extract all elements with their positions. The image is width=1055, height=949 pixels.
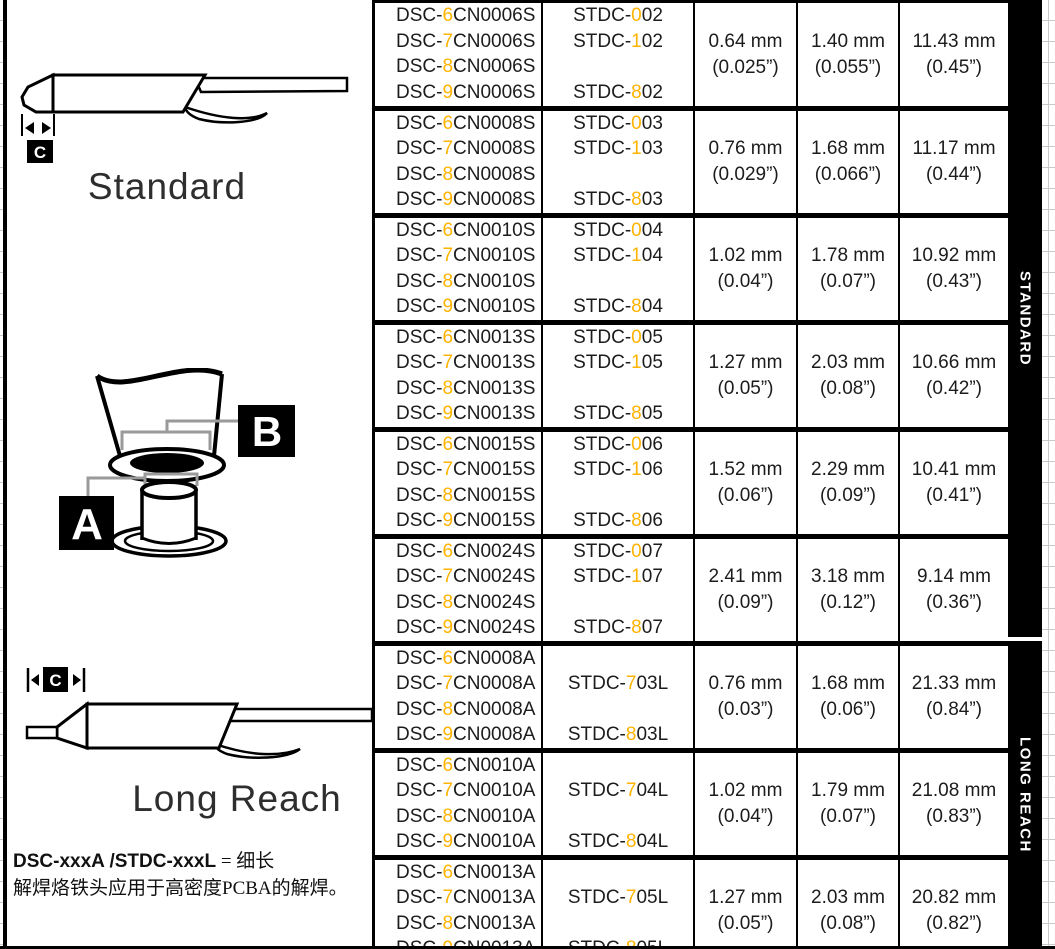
stdc-part-number: STDC-006 bbox=[573, 432, 663, 457]
part-number-highlight-digit: 8 bbox=[626, 938, 637, 949]
dimension-mm: 2.41 mm bbox=[695, 564, 796, 590]
c-dimension-marker: C bbox=[22, 114, 54, 163]
part-number-highlight-digit: 0 bbox=[631, 220, 642, 242]
table-row: DSC-6CN0010ADSC-7CN0010ADSC-8CN0010ADSC-… bbox=[375, 748, 1008, 855]
stdc-part-cell: STDC-006STDC-106STDC-806 bbox=[541, 432, 693, 534]
dsc-part-number: DSC-8CN0015S bbox=[396, 483, 541, 508]
dsc-part-number: DSC-9CN0008S bbox=[396, 187, 541, 212]
dimension-mm: 0.76 mm bbox=[695, 671, 796, 697]
dimension-inch: (0.07”) bbox=[798, 804, 898, 830]
dimension-mm: 1.79 mm bbox=[798, 778, 898, 804]
stdc-part-number: STDC-804 bbox=[573, 294, 663, 319]
dimension-cell-1: 1.02 mm(0.04”) bbox=[693, 753, 796, 855]
stdc-part-number: STDC-804L bbox=[568, 829, 668, 854]
part-number-highlight-digit: 7 bbox=[442, 31, 453, 53]
arrow-left-icon bbox=[31, 674, 39, 686]
dsc-part-number: DSC-7CN0008A bbox=[396, 672, 541, 697]
dsc-part-number: DSC-8CN0013A bbox=[396, 911, 541, 936]
tip-thin-nose bbox=[27, 727, 57, 738]
dsc-part-cell: DSC-6CN0008ADSC-7CN0008ADSC-8CN0008ADSC-… bbox=[375, 646, 541, 748]
dimension-mm: 1.68 mm bbox=[798, 671, 898, 697]
stdc-part-cell: STDC-002STDC-102STDC-802 bbox=[541, 3, 693, 106]
desoldering-tip-datasheet: C Standard B A bbox=[0, 0, 1055, 949]
dimension-mm: 1.27 mm bbox=[695, 350, 796, 376]
dimension-inch: (0.06”) bbox=[695, 483, 796, 509]
dimension-inch: (0.025”) bbox=[695, 55, 796, 81]
stdc-part-cell: STDC-705LSTDC-805L bbox=[541, 860, 693, 949]
stdc-part-cell: STDC-004STDC-104STDC-804 bbox=[541, 218, 693, 320]
tip-hook-blade bbox=[215, 744, 300, 758]
dsc-part-number: DSC-7CN0024S bbox=[396, 565, 541, 590]
part-number-highlight-digit: 7 bbox=[626, 887, 637, 909]
part-number-highlight-digit: 6 bbox=[442, 327, 453, 349]
dsc-part-cell: DSC-6CN0006SDSC-7CN0006SDSC-8CN0006SDSC-… bbox=[375, 3, 541, 106]
dimension-cell-2: 1.68 mm(0.066”) bbox=[796, 111, 898, 213]
stdc-part-number: STDC-704L bbox=[568, 779, 668, 804]
dimension-inch: (0.43”) bbox=[900, 269, 1008, 295]
dimension-inch: (0.07”) bbox=[798, 269, 898, 295]
dsc-part-number: DSC-9CN0010A bbox=[396, 829, 541, 854]
dimension-inch: (0.42”) bbox=[900, 376, 1008, 402]
part-number-highlight-digit: 1 bbox=[631, 245, 642, 267]
part-number-highlight-digit: 8 bbox=[626, 724, 637, 746]
dimension-mm: 1.68 mm bbox=[798, 136, 898, 162]
dsc-part-number: DSC-6CN0024S bbox=[396, 539, 541, 564]
dimension-cell-3: 21.33 mm(0.84”) bbox=[898, 646, 1008, 748]
part-number-highlight-digit: 6 bbox=[442, 862, 453, 884]
part-number-highlight-digit: 8 bbox=[631, 82, 642, 104]
table-row: DSC-6CN0006SDSC-7CN0006SDSC-8CN0006SDSC-… bbox=[375, 3, 1008, 106]
part-number-highlight-digit: 6 bbox=[442, 648, 453, 670]
dsc-part-number: DSC-9CN0008A bbox=[396, 722, 541, 747]
stdc-part-number: STDC-703L bbox=[568, 672, 668, 697]
dsc-part-cell: DSC-6CN0013ADSC-7CN0013ADSC-8CN0013ADSC-… bbox=[375, 860, 541, 949]
dimension-cell-1: 2.41 mm(0.09”) bbox=[693, 539, 796, 641]
dimension-inch: (0.05”) bbox=[695, 911, 796, 937]
stdc-part-number: STDC-003 bbox=[573, 111, 663, 136]
stdc-part-number: STDC-807 bbox=[573, 615, 663, 640]
dsc-part-number: DSC-7CN0013S bbox=[396, 351, 541, 376]
b-label: B bbox=[252, 408, 282, 455]
stdc-part-number: STDC-705L bbox=[568, 886, 668, 911]
dimension-cell-1: 0.76 mm(0.029”) bbox=[693, 111, 796, 213]
dsc-part-number: DSC-9CN0015S bbox=[396, 508, 541, 533]
tip-shaft bbox=[225, 709, 372, 721]
dsc-part-number: DSC-7CN0010S bbox=[396, 244, 541, 269]
tip-hook-blade bbox=[185, 107, 267, 122]
part-number-highlight-digit: 9 bbox=[442, 296, 453, 318]
dimension-cell-1: 1.02 mm(0.04”) bbox=[693, 218, 796, 320]
dsc-part-number: DSC-9CN0024S bbox=[396, 615, 541, 640]
dsc-part-number: DSC-8CN0006S bbox=[396, 55, 541, 80]
dimension-mm: 10.41 mm bbox=[900, 457, 1008, 483]
dsc-part-number: DSC-6CN0015S bbox=[396, 432, 541, 457]
dimension-inch: (0.08”) bbox=[798, 376, 898, 402]
dsc-part-number: DSC-9CN0006S bbox=[396, 80, 541, 105]
dimension-cell-1: 0.64 mm(0.025”) bbox=[693, 3, 796, 106]
part-number-highlight-digit: 8 bbox=[442, 56, 453, 78]
part-number-highlight-digit: 7 bbox=[442, 138, 453, 160]
dimension-cell-2: 2.29 mm(0.09”) bbox=[796, 432, 898, 534]
dimension-mm: 9.14 mm bbox=[900, 564, 1008, 590]
stdc-part-number: STDC-102 bbox=[573, 29, 663, 54]
dimension-cell-3: 21.08 mm(0.83”) bbox=[898, 753, 1008, 855]
stdc-part-number: STDC-007 bbox=[573, 539, 663, 564]
part-number-highlight-digit: 6 bbox=[442, 113, 453, 135]
dimension-mm: 11.17 mm bbox=[900, 136, 1008, 162]
dimension-inch: (0.09”) bbox=[695, 590, 796, 616]
dimension-mm: 21.08 mm bbox=[900, 778, 1008, 804]
dimension-mm: 3.18 mm bbox=[798, 564, 898, 590]
part-number-highlight-digit: 8 bbox=[442, 592, 453, 614]
stdc-part-number: STDC-106 bbox=[573, 458, 663, 483]
part-number-highlight-digit: 0 bbox=[631, 5, 642, 27]
dimension-mm: 0.76 mm bbox=[695, 136, 796, 162]
dsc-part-number: DSC-6CN0006S bbox=[396, 4, 541, 29]
stdc-part-number: STDC-803L bbox=[568, 722, 668, 747]
dimension-mm: 1.02 mm bbox=[695, 778, 796, 804]
dimension-cell-3: 11.43 mm(0.45”) bbox=[898, 3, 1008, 106]
dimension-cell-3: 11.17 mm(0.44”) bbox=[898, 111, 1008, 213]
dsc-part-number: DSC-8CN0008S bbox=[396, 162, 541, 187]
c-dimension-marker-long: C bbox=[28, 667, 84, 692]
c-label: C bbox=[34, 143, 46, 162]
stdc-part-cell: STDC-003STDC-103STDC-803 bbox=[541, 111, 693, 213]
table-row: DSC-6CN0008ADSC-7CN0008ADSC-8CN0008ADSC-… bbox=[375, 641, 1008, 748]
dimension-cell-3: 10.92 mm(0.43”) bbox=[898, 218, 1008, 320]
dimension-inch: (0.82”) bbox=[900, 911, 1008, 937]
stdc-part-number: STDC-805 bbox=[573, 401, 663, 426]
spec-table: DSC-6CN0006SDSC-7CN0006SDSC-8CN0006SDSC-… bbox=[372, 0, 1008, 949]
part-number-highlight-digit: 7 bbox=[442, 887, 453, 909]
funnel-rim bbox=[97, 370, 222, 382]
tip-inner-hole bbox=[130, 453, 204, 473]
dsc-part-number: DSC-6CN0010S bbox=[396, 218, 541, 243]
dsc-part-number: DSC-9CN0013A bbox=[396, 936, 541, 949]
dsc-part-cell: DSC-6CN0015SDSC-7CN0015SDSC-8CN0015SDSC-… bbox=[375, 432, 541, 534]
dimension-inch: (0.04”) bbox=[695, 269, 796, 295]
part-number-highlight-digit: 8 bbox=[626, 831, 637, 853]
dsc-part-number: DSC-8CN0013S bbox=[396, 376, 541, 401]
stdc-part-number: STDC-004 bbox=[573, 218, 663, 243]
note-text: 解焊烙铁头应用于高密度PCBA的解焊。 bbox=[13, 878, 348, 899]
part-number-highlight-digit: 8 bbox=[631, 189, 642, 211]
dimension-cell-1: 0.76 mm(0.03”) bbox=[693, 646, 796, 748]
stdc-part-number: STDC-805L bbox=[568, 936, 668, 949]
stdc-part-number: STDC-806 bbox=[573, 508, 663, 533]
dimension-mm: 10.66 mm bbox=[900, 350, 1008, 376]
part-number-highlight-digit: 6 bbox=[442, 541, 453, 563]
table-row: DSC-6CN0024SDSC-7CN0024SDSC-8CN0024SDSC-… bbox=[375, 534, 1008, 641]
part-number-highlight-digit: 7 bbox=[626, 780, 637, 802]
dimension-cell-3: 20.82 mm(0.82”) bbox=[898, 860, 1008, 949]
long-reach-tip-figure: C bbox=[15, 660, 372, 765]
c-label: C bbox=[49, 671, 61, 690]
dsc-part-number: DSC-7CN0008S bbox=[396, 137, 541, 162]
dimension-inch: (0.029”) bbox=[695, 162, 796, 188]
part-number-highlight-digit: 7 bbox=[442, 673, 453, 695]
standard-caption: Standard bbox=[52, 166, 282, 208]
dimension-mm: 1.02 mm bbox=[695, 243, 796, 269]
dsc-part-number: DSC-7CN0013A bbox=[396, 886, 541, 911]
part-number-highlight-digit: 7 bbox=[442, 780, 453, 802]
dimension-inch: (0.08”) bbox=[798, 911, 898, 937]
part-number-highlight-digit: 1 bbox=[631, 31, 642, 53]
dimension-mm: 2.29 mm bbox=[798, 457, 898, 483]
dimension-cell-3: 9.14 mm(0.36”) bbox=[898, 539, 1008, 641]
dsc-part-number: DSC-7CN0015S bbox=[396, 458, 541, 483]
part-number-highlight-digit: 1 bbox=[631, 459, 642, 481]
dsc-part-number: DSC-8CN0024S bbox=[396, 590, 541, 615]
dimension-inch: (0.41”) bbox=[900, 483, 1008, 509]
note-equals: = 细长 bbox=[216, 851, 274, 872]
stdc-part-cell: STDC-704LSTDC-804L bbox=[541, 753, 693, 855]
note-part-codes: DSC-xxxA /STDC-xxxL bbox=[13, 851, 216, 872]
part-number-highlight-digit: 0 bbox=[631, 113, 642, 135]
part-number-highlight-digit: 8 bbox=[442, 378, 453, 400]
dimension-inch: (0.12”) bbox=[798, 590, 898, 616]
part-number-highlight-digit: 9 bbox=[442, 831, 453, 853]
stdc-part-number: STDC-803 bbox=[573, 187, 663, 212]
part-number-highlight-digit: 1 bbox=[631, 352, 642, 374]
dsc-part-number: DSC-6CN0013S bbox=[396, 325, 541, 350]
a-label: A bbox=[71, 500, 103, 549]
part-number-highlight-digit: 9 bbox=[442, 938, 453, 949]
stdc-part-cell: STDC-007STDC-107STDC-807 bbox=[541, 539, 693, 641]
table-row: DSC-6CN0008SDSC-7CN0008SDSC-8CN0008SDSC-… bbox=[375, 106, 1008, 213]
dsc-part-cell: DSC-6CN0024SDSC-7CN0024SDSC-8CN0024SDSC-… bbox=[375, 539, 541, 641]
dimension-cell-1: 1.27 mm(0.05”) bbox=[693, 325, 796, 427]
part-number-highlight-digit: 0 bbox=[631, 327, 642, 349]
dsc-part-number: DSC-8CN0008A bbox=[396, 697, 541, 722]
dimension-inch: (0.83”) bbox=[900, 804, 1008, 830]
dimension-cell-2: 1.78 mm(0.07”) bbox=[796, 218, 898, 320]
part-number-highlight-digit: 9 bbox=[442, 510, 453, 532]
dimension-inch: (0.055”) bbox=[798, 55, 898, 81]
dimension-cell-1: 1.27 mm(0.05”) bbox=[693, 860, 796, 949]
part-number-highlight-digit: 8 bbox=[442, 164, 453, 186]
stdc-part-number: STDC-107 bbox=[573, 565, 663, 590]
dsc-part-number: DSC-6CN0010A bbox=[396, 753, 541, 778]
part-number-highlight-digit: 6 bbox=[442, 220, 453, 242]
part-number-highlight-digit: 7 bbox=[626, 673, 637, 695]
dimension-cell-2: 1.40 mm(0.055”) bbox=[796, 3, 898, 106]
part-number-highlight-digit: 9 bbox=[442, 189, 453, 211]
stdc-part-number: STDC-105 bbox=[573, 351, 663, 376]
dsc-part-cell: DSC-6CN0008SDSC-7CN0008SDSC-8CN0008SDSC-… bbox=[375, 111, 541, 213]
part-number-highlight-digit: 9 bbox=[442, 82, 453, 104]
part-number-highlight-digit: 1 bbox=[631, 138, 642, 160]
dimension-inch: (0.45”) bbox=[900, 55, 1008, 81]
stdc-part-number: STDC-103 bbox=[573, 137, 663, 162]
table-row: DSC-6CN0013SDSC-7CN0013SDSC-8CN0013SDSC-… bbox=[375, 320, 1008, 427]
dimension-inch: (0.05”) bbox=[695, 376, 796, 402]
part-number-highlight-digit: 7 bbox=[442, 245, 453, 267]
spreadsheet-gridlines bbox=[1042, 0, 1055, 946]
part-number-highlight-digit: 7 bbox=[442, 566, 453, 588]
dimension-mm: 2.03 mm bbox=[798, 350, 898, 376]
dimension-mm: 1.78 mm bbox=[798, 243, 898, 269]
dimension-cell-2: 2.03 mm(0.08”) bbox=[796, 860, 898, 949]
part-number-highlight-digit: 8 bbox=[442, 699, 453, 721]
dimension-cell-1: 1.52 mm(0.06”) bbox=[693, 432, 796, 534]
part-number-highlight-digit: 6 bbox=[442, 755, 453, 777]
tip-shaft bbox=[195, 78, 347, 92]
cylinder-top bbox=[142, 482, 196, 498]
part-number-highlight-digit: 8 bbox=[442, 913, 453, 935]
stdc-part-number: STDC-802 bbox=[573, 80, 663, 105]
stdc-part-number: STDC-104 bbox=[573, 244, 663, 269]
stdc-part-cell: STDC-703LSTDC-803L bbox=[541, 646, 693, 748]
part-number-highlight-digit: 6 bbox=[442, 5, 453, 27]
dimension-inch: (0.44”) bbox=[900, 162, 1008, 188]
part-number-highlight-digit: 0 bbox=[631, 541, 642, 563]
part-number-highlight-digit: 0 bbox=[631, 434, 642, 456]
part-number-highlight-digit: 8 bbox=[442, 271, 453, 293]
dsc-part-number: DSC-6CN0008S bbox=[396, 111, 541, 136]
stdc-part-number: STDC-005 bbox=[573, 325, 663, 350]
dimension-cell-2: 2.03 mm(0.08”) bbox=[796, 325, 898, 427]
table-row: DSC-6CN0013ADSC-7CN0013ADSC-8CN0013ADSC-… bbox=[375, 855, 1008, 949]
long-reach-note: DSC-xxxA /STDC-xxxL = 细长 解焊烙铁头应用于高密度PCBA… bbox=[13, 848, 351, 902]
dimension-mm: 1.52 mm bbox=[695, 457, 796, 483]
dimension-inch: (0.36”) bbox=[900, 590, 1008, 616]
part-number-highlight-digit: 8 bbox=[442, 485, 453, 507]
dsc-part-number: DSC-9CN0013S bbox=[396, 401, 541, 426]
tip-nose bbox=[22, 75, 53, 112]
tip-body bbox=[53, 75, 205, 112]
part-number-highlight-digit: 9 bbox=[442, 403, 453, 425]
dimension-cell-2: 1.68 mm(0.06”) bbox=[796, 646, 898, 748]
dimension-cell-2: 3.18 mm(0.12”) bbox=[796, 539, 898, 641]
part-number-highlight-digit: 1 bbox=[631, 566, 642, 588]
dimension-inch: (0.09”) bbox=[798, 483, 898, 509]
part-number-highlight-digit: 9 bbox=[442, 617, 453, 639]
dimension-mm: 20.82 mm bbox=[900, 885, 1008, 911]
dsc-part-number: DSC-7CN0010A bbox=[396, 779, 541, 804]
part-number-highlight-digit: 8 bbox=[631, 510, 642, 532]
dimension-mm: 21.33 mm bbox=[900, 671, 1008, 697]
dimension-inch: (0.066”) bbox=[798, 162, 898, 188]
long-reach-section-bar: LONG REACH bbox=[1008, 641, 1042, 949]
part-number-highlight-digit: 8 bbox=[631, 296, 642, 318]
arrow-right-icon bbox=[73, 674, 81, 686]
part-number-highlight-digit: 8 bbox=[631, 617, 642, 639]
long-reach-caption: Long Reach bbox=[107, 778, 367, 820]
dsc-part-number: DSC-6CN0008A bbox=[396, 646, 541, 671]
part-number-highlight-digit: 6 bbox=[442, 434, 453, 456]
dsc-part-cell: DSC-6CN0013SDSC-7CN0013SDSC-8CN0013SDSC-… bbox=[375, 325, 541, 427]
tip-body bbox=[87, 704, 237, 748]
dsc-part-number: DSC-7CN0006S bbox=[396, 29, 541, 54]
arrow-right-icon bbox=[42, 122, 51, 134]
dimension-mm: 1.40 mm bbox=[798, 29, 898, 55]
dsc-part-cell: DSC-6CN0010SDSC-7CN0010SDSC-8CN0010SDSC-… bbox=[375, 218, 541, 320]
dimension-cell-2: 1.79 mm(0.07”) bbox=[796, 753, 898, 855]
arrow-left-icon bbox=[25, 122, 34, 134]
part-number-highlight-digit: 8 bbox=[631, 403, 642, 425]
dsc-part-number: DSC-8CN0010A bbox=[396, 804, 541, 829]
stdc-part-cell: STDC-005STDC-105STDC-805 bbox=[541, 325, 693, 427]
part-number-highlight-digit: 8 bbox=[442, 806, 453, 828]
dimension-cell-3: 10.66 mm(0.42”) bbox=[898, 325, 1008, 427]
dimension-mm: 11.43 mm bbox=[900, 29, 1008, 55]
dimension-cell-3: 10.41 mm(0.41”) bbox=[898, 432, 1008, 534]
dimension-mm: 2.03 mm bbox=[798, 885, 898, 911]
part-number-highlight-digit: 7 bbox=[442, 352, 453, 374]
table-row: DSC-6CN0015SDSC-7CN0015SDSC-8CN0015SDSC-… bbox=[375, 427, 1008, 534]
dimension-inch: (0.03”) bbox=[695, 697, 796, 723]
dsc-part-cell: DSC-6CN0010ADSC-7CN0010ADSC-8CN0010ADSC-… bbox=[375, 753, 541, 855]
dimension-mm: 10.92 mm bbox=[900, 243, 1008, 269]
stdc-part-number: STDC-002 bbox=[573, 4, 663, 29]
standard-tip-figure: C bbox=[15, 62, 360, 167]
long-reach-section-label: LONG REACH bbox=[1017, 737, 1034, 853]
standard-section-bar: STANDARD bbox=[1008, 0, 1042, 637]
table-row: DSC-6CN0010SDSC-7CN0010SDSC-8CN0010SDSC-… bbox=[375, 213, 1008, 320]
dimension-inch: (0.06”) bbox=[798, 697, 898, 723]
standard-section-label: STANDARD bbox=[1017, 271, 1034, 366]
tip-cone bbox=[57, 704, 87, 748]
dsc-part-number: DSC-8CN0010S bbox=[396, 269, 541, 294]
dsc-part-number: DSC-6CN0013A bbox=[396, 860, 541, 885]
tip-cross-section-figure: B A bbox=[50, 368, 310, 573]
dimension-inch: (0.04”) bbox=[695, 804, 796, 830]
dsc-part-number: DSC-9CN0010S bbox=[396, 294, 541, 319]
part-number-highlight-digit: 7 bbox=[442, 459, 453, 481]
dimension-mm: 0.64 mm bbox=[695, 29, 796, 55]
dimension-inch: (0.84”) bbox=[900, 697, 1008, 723]
part-number-highlight-digit: 9 bbox=[442, 724, 453, 746]
illustrations-panel: C Standard B A bbox=[7, 0, 372, 946]
dimension-mm: 1.27 mm bbox=[695, 885, 796, 911]
